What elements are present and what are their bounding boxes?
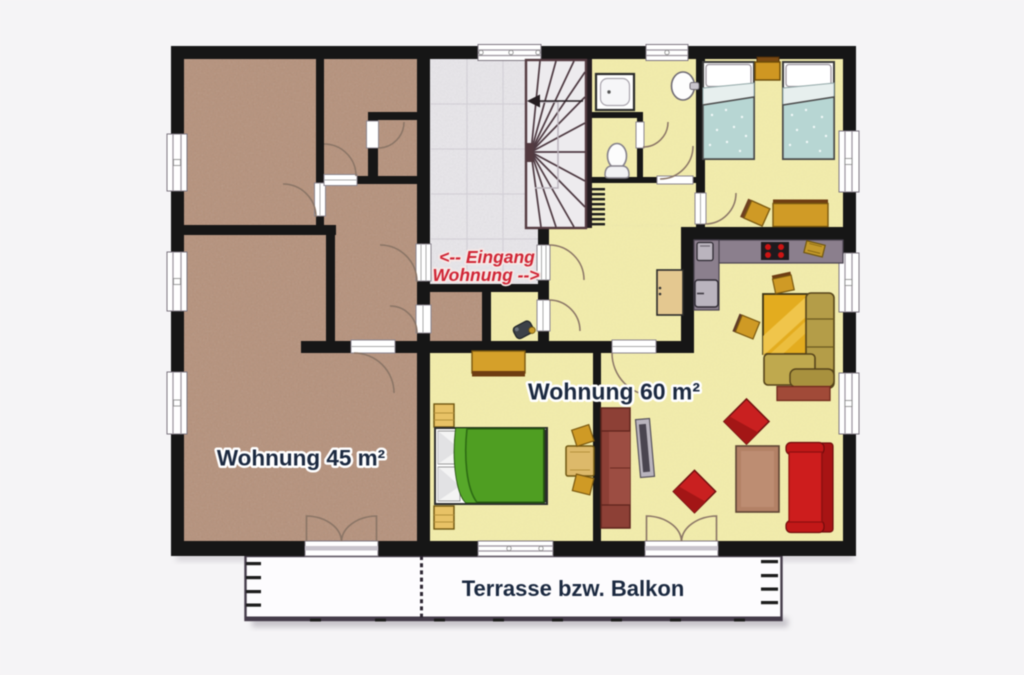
svg-text:Terrasse bzw. Balkon: Terrasse bzw. Balkon [462,576,685,601]
svg-text:Wohnung 60 m²: Wohnung 60 m² [528,379,700,405]
svg-text:<-- Eingang: <-- Eingang [439,247,535,267]
svg-text:Wohnung 45 m²: Wohnung 45 m² [217,446,386,471]
svg-text:Wohnung -->: Wohnung --> [432,265,539,285]
